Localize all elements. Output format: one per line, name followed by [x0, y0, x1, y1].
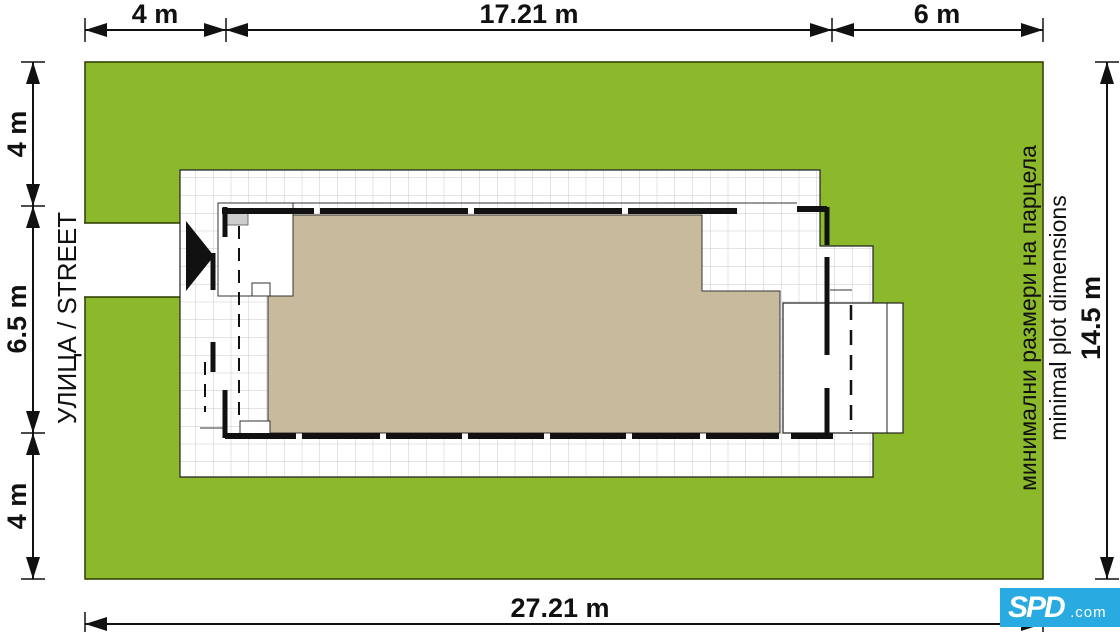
dim-top-right-label: 6 m [914, 0, 961, 29]
plot-note-bulgarian: минимални размери на парцела [1015, 145, 1041, 491]
dim-left-bottom-label: 4 m [2, 483, 32, 530]
site-plan-svg: 4 m 17.21 m 6 m 4 m 6.5 m 4 m [0, 0, 1120, 632]
dim-left-top-label: 4 m [2, 111, 32, 158]
street-driveway [84, 223, 181, 297]
dim-left-middle-label: 6.5 m [2, 284, 32, 353]
entry-pad [226, 213, 248, 225]
logo-suffix-text: .com [1070, 604, 1107, 621]
dim-right-total-label: 14.5 m [1076, 276, 1106, 360]
dim-bottom-total-label: 27.21 m [510, 593, 609, 623]
site-plan-canvas: 4 m 17.21 m 6 m 4 m 6.5 m 4 m [0, 0, 1120, 632]
dim-top-left-label: 4 m [132, 0, 179, 29]
dimension-line-top: 4 m 17.21 m 6 m [85, 0, 1043, 42]
logo-brand-text: SPD [1008, 591, 1065, 624]
dimension-line-right: 14.5 m [1076, 62, 1119, 579]
street-label: УЛИЦА / STREET [52, 212, 82, 424]
dimension-line-bottom: 27.21 m [85, 593, 1043, 632]
dim-top-middle-label: 17.21 m [479, 0, 578, 29]
dimension-line-left: 4 m 6.5 m 4 m [2, 62, 45, 579]
garage-driveway [783, 303, 903, 433]
plot-note-english: minimal plot dimensions [1045, 195, 1071, 440]
logo-badge: SPD .com [1000, 588, 1120, 627]
